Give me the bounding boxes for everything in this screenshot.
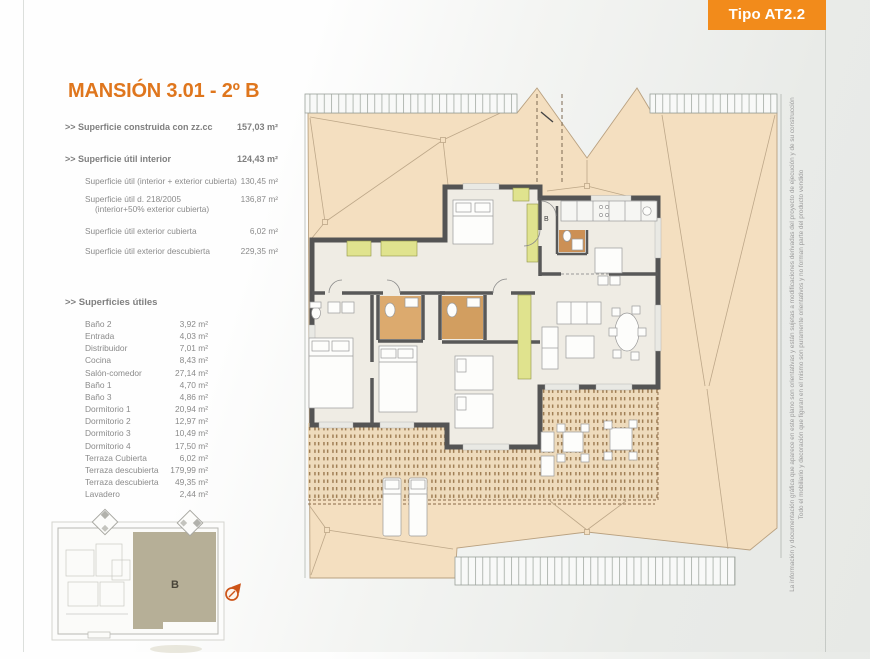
room-value: 4,70 m² [180, 379, 208, 391]
summary-value: 229,35 m² [241, 246, 278, 256]
summary-label: Superficie útil (interior + exterior cub… [85, 176, 237, 186]
room-value: 4,86 m² [180, 391, 208, 403]
disclaimer-text: La información y documentación gráfica q… [789, 57, 806, 632]
room-value: 20,94 m² [175, 403, 208, 415]
room-value: 17,50 m² [175, 440, 208, 452]
room-row: Distribuidor7,01 m² [85, 342, 208, 354]
room-row: Terraza Cubierta6,02 m² [85, 452, 208, 464]
floor-plan-svg: B [295, 80, 795, 600]
room-name: Terraza descubierta [85, 476, 159, 488]
room-row: Lavadero2,44 m² [85, 488, 208, 500]
room-row: Baño 23,92 m² [85, 318, 208, 330]
disclaimer-line-2: Todo el mobiliario y decoración que figu… [798, 57, 807, 632]
summary-label: >> Superficie construida con zz.cc [65, 122, 213, 132]
room-row: Salón-comedor27,14 m² [85, 367, 208, 379]
railing-bottom [455, 557, 735, 585]
room-name: Terraza Cubierta [85, 452, 147, 464]
disclaimer-line-1: La información y documentación gráfica q… [789, 57, 798, 632]
room-value: 8,43 m² [180, 354, 208, 366]
key-plan: B [48, 502, 253, 659]
room-value: 27,14 m² [175, 367, 208, 379]
room-row: Dormitorio 417,50 m² [85, 440, 208, 452]
room-row: Dormitorio 120,94 m² [85, 403, 208, 415]
rooms-heading: >> Superficies útiles [65, 297, 157, 308]
room-value: 4,03 m² [180, 330, 208, 342]
room-name: Lavadero [85, 488, 120, 500]
room-row: Terraza descubierta179,99 m² [85, 464, 208, 476]
summary-value: 130,45 m² [241, 176, 278, 186]
summary-value: 6,02 m² [250, 226, 278, 236]
summary-row: Superficie útil exterior cubierta 6,02 m… [65, 226, 278, 236]
room-row: Dormitorio 310,49 m² [85, 427, 208, 439]
room-name: Cocina [85, 354, 111, 366]
room-name: Terraza descubierta [85, 464, 159, 476]
summary-label-line1: Superficie útil d. 218/2005 [85, 194, 181, 204]
summary-row: >> Superficie útil interior 124,43 m² [65, 154, 278, 164]
unit-label: B [171, 579, 179, 591]
room-name: Distribuidor [85, 342, 127, 354]
summary-value: 124,43 m² [237, 154, 278, 164]
summary-label: >> Superficie útil interior [65, 154, 171, 164]
room-name: Baño 1 [85, 379, 112, 391]
room-row: Entrada4,03 m² [85, 330, 208, 342]
room-name: Baño 2 [85, 318, 112, 330]
room-name: Baño 3 [85, 391, 112, 403]
summary-row: >> Superficie construida con zz.cc 157,0… [65, 122, 278, 132]
room-row: Baño 34,86 m² [85, 391, 208, 403]
floor-plan: B [295, 80, 795, 605]
summary-value: 136,87 m² [241, 194, 278, 214]
north-arrow-icon [226, 580, 245, 600]
room-row: Dormitorio 212,97 m² [85, 415, 208, 427]
summary-row: Superficie útil d. 218/2005(interior+50%… [65, 194, 278, 214]
right-separator-line [825, 28, 826, 652]
room-value: 7,01 m² [180, 342, 208, 354]
summary-row: Superficie útil exterior descubierta 229… [65, 246, 278, 256]
railing-top-left [305, 94, 517, 113]
room-name: Salón-comedor [85, 367, 142, 379]
room-value: 12,97 m² [175, 415, 208, 427]
room-value: 2,44 m² [180, 488, 208, 500]
entrance-label: B [544, 216, 549, 223]
room-name: Dormitorio 3 [85, 427, 131, 439]
summary-label: Superficie útil d. 218/2005(interior+50%… [85, 194, 209, 214]
rooms-list: Baño 23,92 m² Entrada4,03 m² Distribuido… [85, 318, 208, 500]
room-row: Cocina8,43 m² [85, 354, 208, 366]
room-value: 49,35 m² [175, 476, 208, 488]
summary-label-line2: (interior+50% exterior cubierta) [85, 204, 209, 214]
room-name: Dormitorio 4 [85, 440, 131, 452]
key-plan-svg: B [48, 502, 253, 654]
room-value: 10,49 m² [175, 427, 208, 439]
room-name: Dormitorio 2 [85, 415, 131, 427]
page-left-edge [23, 0, 24, 652]
room-name: Entrada [85, 330, 114, 342]
summary-label: Superficie útil exterior cubierta [85, 226, 197, 236]
railing-top-right [650, 94, 777, 113]
summary-value: 157,03 m² [237, 122, 278, 132]
summary-label: Superficie útil exterior descubierta [85, 246, 210, 256]
room-row: Terraza descubierta49,35 m² [85, 476, 208, 488]
room-value: 3,92 m² [180, 318, 208, 330]
room-value: 179,99 m² [170, 464, 208, 476]
summary-row: Superficie útil (interior + exterior cub… [65, 176, 278, 186]
page-title: MANSIÓN 3.01 - 2º B [68, 80, 259, 103]
room-row: Baño 14,70 m² [85, 379, 208, 391]
type-badge: Tipo AT2.2 [708, 0, 826, 30]
room-name: Dormitorio 1 [85, 403, 131, 415]
room-value: 6,02 m² [180, 452, 208, 464]
